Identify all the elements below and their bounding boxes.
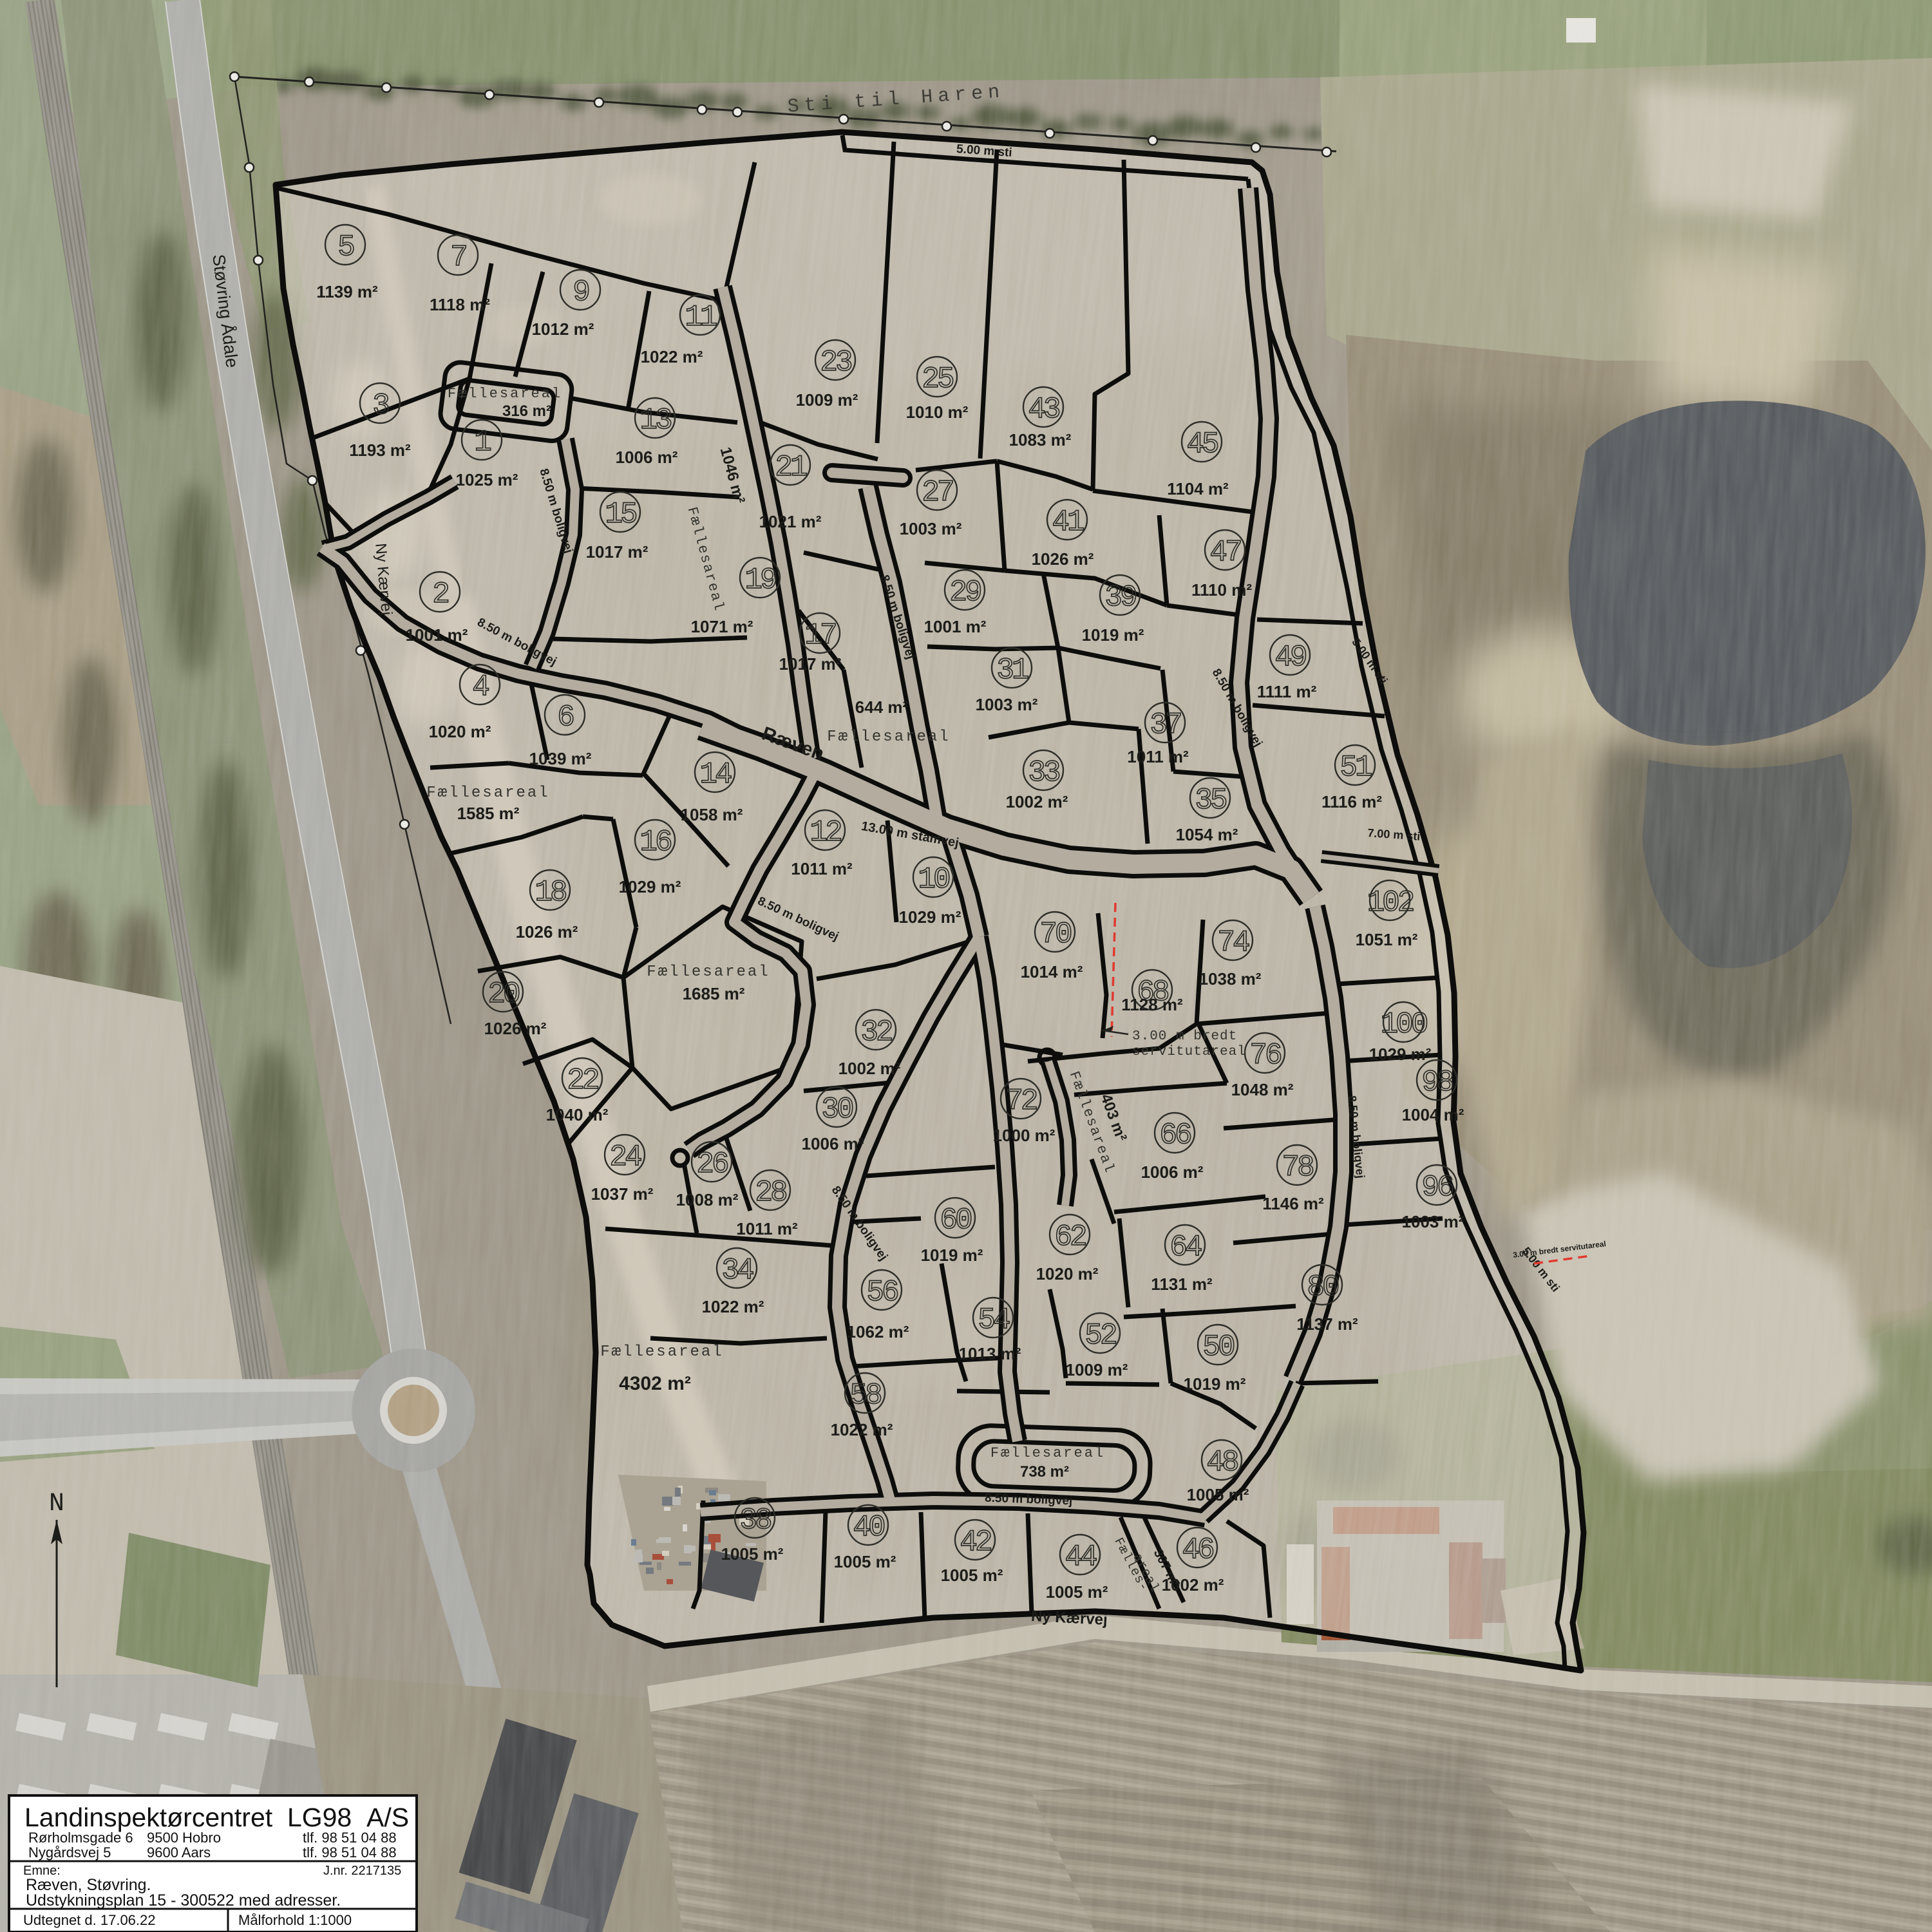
svg-text:1054 m²: 1054 m² [1176, 825, 1238, 844]
svg-text:1005 m²: 1005 m² [941, 1566, 1003, 1585]
svg-text:1137 m²: 1137 m² [1296, 1314, 1358, 1334]
svg-text:Fællesareal: Fællesareal [647, 963, 770, 981]
svg-text:1022 m²: 1022 m² [831, 1420, 893, 1439]
svg-text:76: 76 [1249, 1039, 1281, 1072]
svg-text:43: 43 [1028, 393, 1059, 426]
svg-text:34: 34 [721, 1254, 753, 1287]
svg-text:Fællesareal: Fællesareal [827, 728, 950, 746]
svg-text:1139 m²: 1139 m² [316, 282, 378, 301]
svg-text:42: 42 [960, 1526, 991, 1559]
svg-text:1104 m²: 1104 m² [1167, 479, 1229, 498]
svg-text:tlf. 98 51 04 88: tlf. 98 51 04 88 [303, 1844, 397, 1861]
svg-text:1026 m²: 1026 m² [1032, 549, 1094, 569]
svg-text:45: 45 [1186, 428, 1218, 461]
svg-text:24: 24 [609, 1141, 641, 1174]
svg-text:1131 m²: 1131 m² [1151, 1274, 1213, 1294]
svg-text:51: 51 [1340, 751, 1372, 784]
svg-text:1685 m²: 1685 m² [683, 984, 745, 1003]
svg-text:1146 m²: 1146 m² [1262, 1194, 1324, 1213]
svg-text:1022 m²: 1022 m² [702, 1297, 764, 1316]
svg-text:1003 m²: 1003 m² [976, 695, 1038, 714]
svg-text:98: 98 [1421, 1066, 1453, 1099]
svg-text:1029 m²: 1029 m² [899, 907, 961, 927]
svg-text:15: 15 [605, 498, 636, 531]
svg-text:9500 Hobro: 9500 Hobro [147, 1830, 221, 1846]
svg-text:21: 21 [775, 451, 807, 484]
svg-text:39: 39 [1104, 581, 1136, 614]
svg-text:1040 m²: 1040 m² [546, 1105, 609, 1124]
svg-text:54: 54 [978, 1303, 1010, 1337]
svg-text:1019 m²: 1019 m² [1082, 625, 1144, 645]
svg-text:50: 50 [1202, 1331, 1234, 1364]
svg-text:23: 23 [820, 346, 851, 379]
svg-text:1: 1 [474, 426, 491, 459]
svg-text:N: N [49, 1490, 64, 1519]
svg-text:9: 9 [573, 276, 589, 309]
svg-text:11: 11 [685, 301, 717, 334]
svg-text:1051 m²: 1051 m² [1356, 930, 1418, 949]
svg-text:4: 4 [472, 670, 489, 704]
svg-text:3.00 m bredt: 3.00 m bredt [1132, 1029, 1237, 1044]
svg-text:70: 70 [1039, 918, 1071, 951]
svg-text:1585 m²: 1585 m² [457, 804, 520, 823]
svg-text:1003 m²: 1003 m² [1402, 1212, 1464, 1231]
svg-text:1000 m²: 1000 m² [993, 1126, 1056, 1145]
svg-text:1001 m²: 1001 m² [406, 625, 468, 645]
svg-text:Rørholmsgade 6: Rørholmsgade 6 [28, 1830, 133, 1846]
svg-text:19: 19 [744, 563, 776, 597]
svg-text:1128 m²: 1128 m² [1121, 995, 1183, 1014]
svg-text:35: 35 [1195, 784, 1226, 817]
svg-text:16: 16 [639, 826, 671, 859]
svg-text:31: 31 [996, 654, 1028, 687]
svg-text:1025 m²: 1025 m² [456, 470, 518, 489]
svg-text:1014 m²: 1014 m² [1021, 962, 1083, 981]
svg-text:1039 m²: 1039 m² [529, 749, 592, 768]
svg-text:96: 96 [1421, 1171, 1453, 1204]
svg-text:56: 56 [866, 1276, 898, 1309]
svg-text:1020 m²: 1020 m² [1036, 1264, 1099, 1283]
svg-text:20: 20 [488, 978, 519, 1011]
svg-text:7: 7 [450, 241, 466, 274]
svg-text:14: 14 [699, 758, 732, 791]
svg-text:1002 m²: 1002 m² [838, 1059, 901, 1078]
svg-text:J.nr. 2217135: J.nr. 2217135 [323, 1864, 401, 1878]
svg-text:Målforhold 1:1000: Målforhold 1:1000 [238, 1912, 352, 1928]
svg-text:Fællesareal: Fællesareal [426, 784, 549, 802]
svg-text:Landinspektørcentret LG98 A/: Landinspektørcentret LG98 A/S [24, 1803, 409, 1832]
svg-text:1003 m²: 1003 m² [900, 519, 962, 538]
svg-text:Fællesareal: Fællesareal [600, 1343, 723, 1361]
svg-text:1010 m²: 1010 m² [906, 402, 969, 422]
svg-text:1083 m²: 1083 m² [1009, 430, 1072, 450]
svg-text:1019 m²: 1019 m² [1184, 1374, 1246, 1394]
svg-text:4302 m²: 4302 m² [619, 1373, 691, 1394]
svg-text:38: 38 [739, 1504, 771, 1537]
svg-text:30: 30 [821, 1093, 853, 1126]
svg-text:66: 66 [1159, 1119, 1191, 1152]
svg-text:1193 m²: 1193 m² [349, 440, 411, 460]
svg-text:64: 64 [1170, 1231, 1202, 1264]
svg-text:1038 m²: 1038 m² [1199, 969, 1262, 989]
svg-text:33: 33 [1028, 756, 1059, 790]
svg-text:100: 100 [1381, 1008, 1427, 1041]
svg-text:80: 80 [1307, 1271, 1338, 1304]
svg-text:1111 m²: 1111 m² [1257, 682, 1317, 701]
svg-text:18: 18 [535, 876, 566, 909]
svg-text:1022 m²: 1022 m² [641, 347, 703, 366]
svg-text:1011 m²: 1011 m² [736, 1219, 798, 1238]
svg-text:28: 28 [755, 1176, 786, 1209]
svg-text:6: 6 [557, 701, 573, 734]
svg-text:25: 25 [922, 363, 953, 396]
svg-text:1008 m²: 1008 m² [676, 1190, 739, 1209]
svg-text:1005 m²: 1005 m² [1046, 1582, 1108, 1602]
svg-text:1017 m²: 1017 m² [586, 542, 649, 562]
svg-text:9600 Aars: 9600 Aars [147, 1844, 211, 1861]
svg-text:13: 13 [639, 404, 671, 437]
svg-text:1110 m²: 1110 m² [1191, 580, 1252, 600]
svg-text:1020 m²: 1020 m² [429, 722, 491, 741]
svg-text:1005 m²: 1005 m² [834, 1552, 896, 1571]
svg-text:Udstykningsplan 15 - 300522 me: Udstykningsplan 15 - 300522 med adresser… [26, 1891, 341, 1909]
svg-text:1009 m²: 1009 m² [1066, 1360, 1128, 1379]
svg-text:1017 m²: 1017 m² [779, 654, 842, 674]
svg-text:17: 17 [804, 619, 836, 652]
svg-text:1011 m²: 1011 m² [791, 859, 853, 878]
svg-text:1009 m²: 1009 m² [796, 390, 858, 410]
svg-text:2: 2 [432, 578, 448, 611]
svg-text:1002 m²: 1002 m² [1006, 792, 1068, 811]
svg-text:48: 48 [1206, 1446, 1238, 1479]
svg-text:74: 74 [1217, 926, 1249, 960]
svg-text:22: 22 [567, 1064, 598, 1097]
svg-text:1062 m²: 1062 m² [847, 1322, 909, 1341]
svg-text:78: 78 [1282, 1151, 1313, 1184]
svg-text:52: 52 [1084, 1319, 1116, 1352]
svg-text:Udtegnet d. 17.06.22: Udtegnet d. 17.06.22 [23, 1912, 156, 1928]
svg-text:1029 m²: 1029 m² [619, 877, 681, 896]
svg-text:1037 m²: 1037 m² [591, 1184, 654, 1204]
svg-text:41: 41 [1052, 506, 1084, 539]
svg-text:tlf. 98 51 04 88: tlf. 98 51 04 88 [303, 1830, 397, 1846]
svg-text:Fællesareal: Fællesareal [990, 1445, 1105, 1461]
svg-text:1058 m²: 1058 m² [681, 805, 743, 824]
svg-text:46: 46 [1182, 1533, 1213, 1567]
svg-text:1011 m²: 1011 m² [1127, 747, 1189, 766]
svg-text:1005 m²: 1005 m² [1187, 1485, 1249, 1504]
svg-text:1004 m²: 1004 m² [1402, 1105, 1464, 1124]
svg-text:644 m²: 644 m² [855, 697, 909, 717]
svg-text:32: 32 [860, 1016, 892, 1049]
svg-text:Nygårdsvej 5: Nygårdsvej 5 [28, 1844, 111, 1861]
svg-text:1001 m²: 1001 m² [924, 617, 987, 636]
svg-text:72: 72 [1005, 1084, 1037, 1118]
svg-text:servitutareal: servitutareal [1132, 1045, 1246, 1059]
svg-text:1116 m²: 1116 m² [1321, 792, 1382, 811]
svg-text:5: 5 [337, 231, 354, 264]
svg-text:316 m²: 316 m² [502, 402, 551, 420]
svg-text:58: 58 [849, 1379, 881, 1412]
svg-text:27: 27 [922, 476, 953, 509]
svg-text:1026 m²: 1026 m² [516, 922, 578, 942]
svg-text:37: 37 [1150, 708, 1181, 742]
svg-text:12: 12 [810, 816, 841, 849]
svg-text:10: 10 [918, 863, 949, 896]
svg-text:60: 60 [940, 1204, 971, 1237]
svg-text:102: 102 [1367, 886, 1414, 920]
svg-text:1012 m²: 1012 m² [532, 319, 594, 339]
svg-text:47: 47 [1209, 536, 1241, 569]
svg-text:29: 29 [949, 576, 981, 609]
svg-text:Fællesareal: Fællesareal [448, 386, 562, 402]
svg-text:40: 40 [853, 1511, 884, 1544]
svg-text:1026 m²: 1026 m² [484, 1019, 547, 1038]
svg-text:1006 m²: 1006 m² [1141, 1162, 1204, 1182]
svg-text:49: 49 [1274, 641, 1306, 674]
svg-text:1118 m²: 1118 m² [430, 295, 490, 314]
svg-text:1013 m²: 1013 m² [959, 1344, 1021, 1363]
svg-text:738 m²: 738 m² [1020, 1463, 1069, 1481]
svg-text:1005 m²: 1005 m² [721, 1544, 784, 1564]
svg-text:1019 m²: 1019 m² [921, 1245, 983, 1265]
svg-text:1006 m²: 1006 m² [616, 448, 678, 467]
svg-text:62: 62 [1054, 1220, 1086, 1254]
svg-text:1006 m²: 1006 m² [802, 1134, 864, 1153]
svg-text:3: 3 [372, 389, 388, 422]
svg-text:1021 m²: 1021 m² [759, 512, 822, 531]
svg-text:26: 26 [696, 1148, 728, 1181]
svg-text:1029 m²: 1029 m² [1369, 1045, 1432, 1064]
svg-text:44: 44 [1065, 1540, 1097, 1574]
svg-text:1071 m²: 1071 m² [691, 617, 753, 636]
svg-text:1048 m²: 1048 m² [1231, 1080, 1294, 1099]
